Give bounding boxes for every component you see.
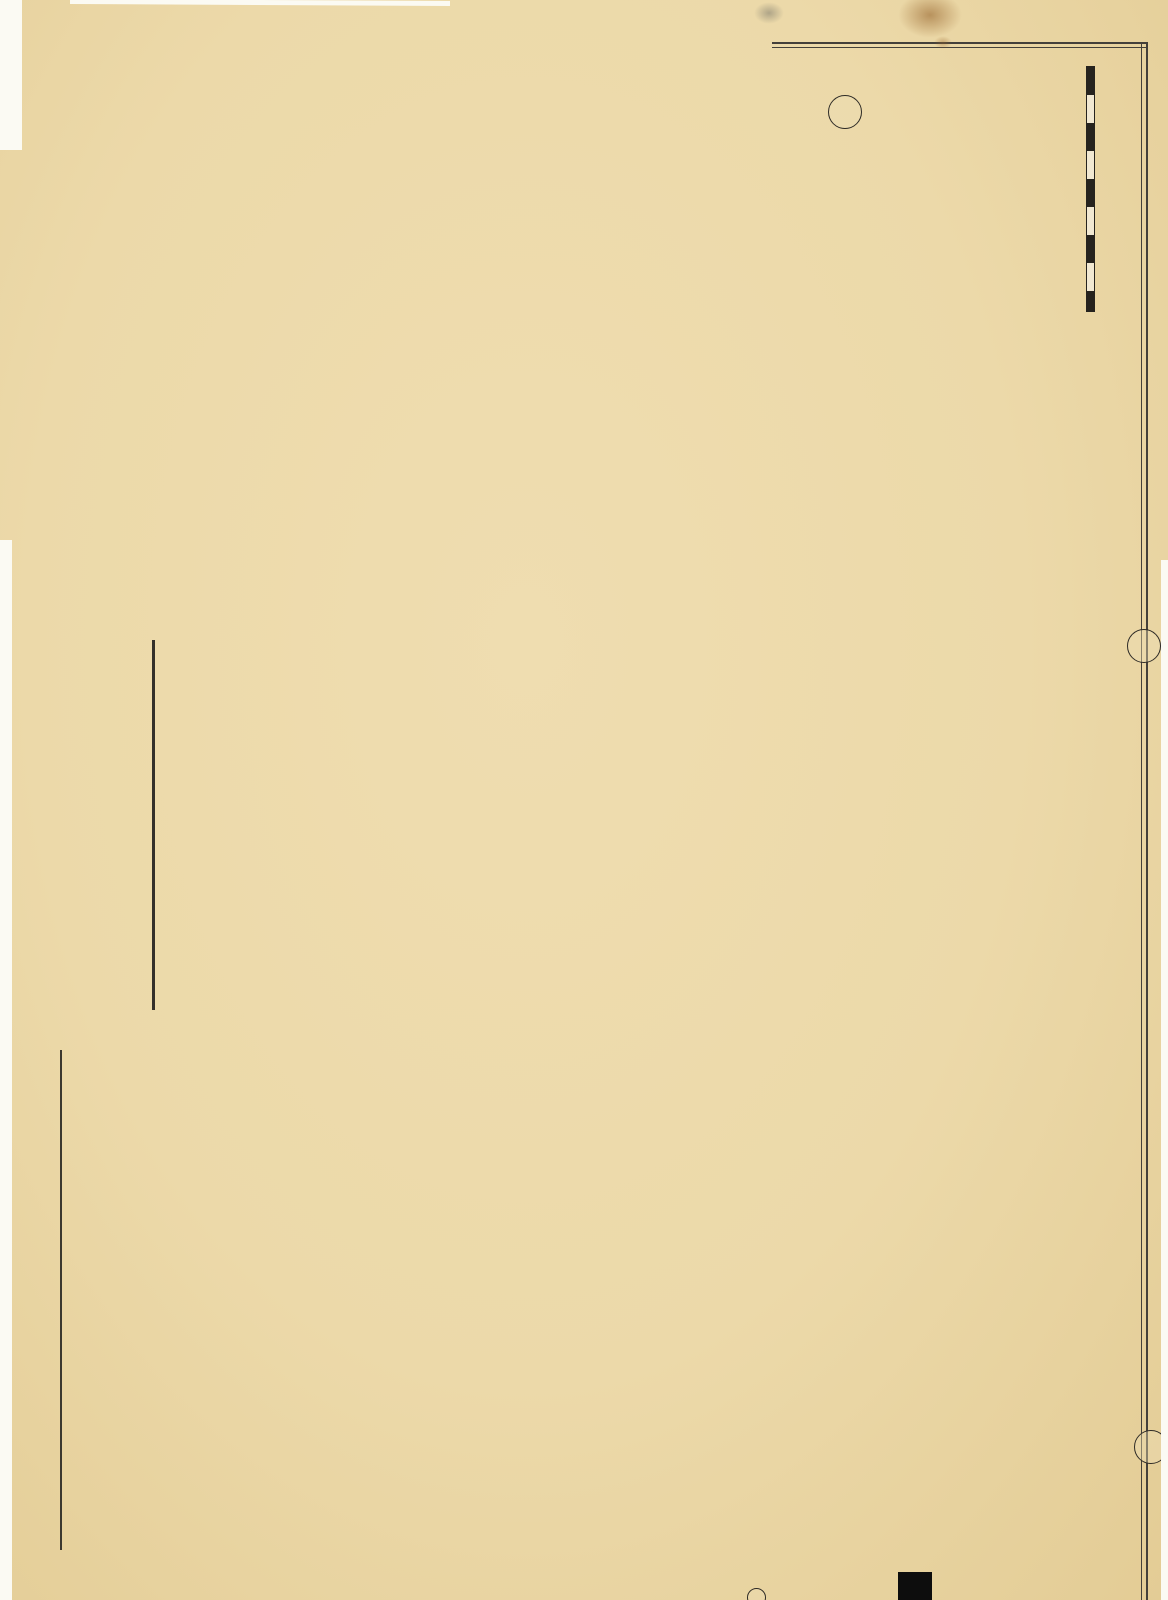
adjacent-plate-2-bottom (747, 1588, 766, 1600)
adjacent-plate-40-upper (1127, 629, 1161, 663)
adjacent-plate-23 (828, 95, 862, 129)
scan-edge-right (1161, 560, 1168, 1600)
scan-edge-left-lower (0, 540, 12, 1600)
city-title-underline (152, 640, 155, 1010)
plate-border-right-outer (1146, 42, 1148, 1600)
paper-stain-small (754, 2, 784, 24)
paper-stain-dot (934, 36, 952, 49)
plate-border-top-outer (772, 42, 1147, 44)
plate-border-right-inner (1141, 42, 1142, 1600)
redaction-black-box (898, 1572, 932, 1600)
scale-bar (1086, 66, 1095, 312)
margin-note-underline (60, 1050, 62, 1550)
labels-layer (0, 0, 1168, 1600)
atlas-plate-map (0, 0, 1168, 1600)
scan-edge-left-top (0, 0, 22, 150)
plate-border-top-inner (772, 47, 1147, 48)
